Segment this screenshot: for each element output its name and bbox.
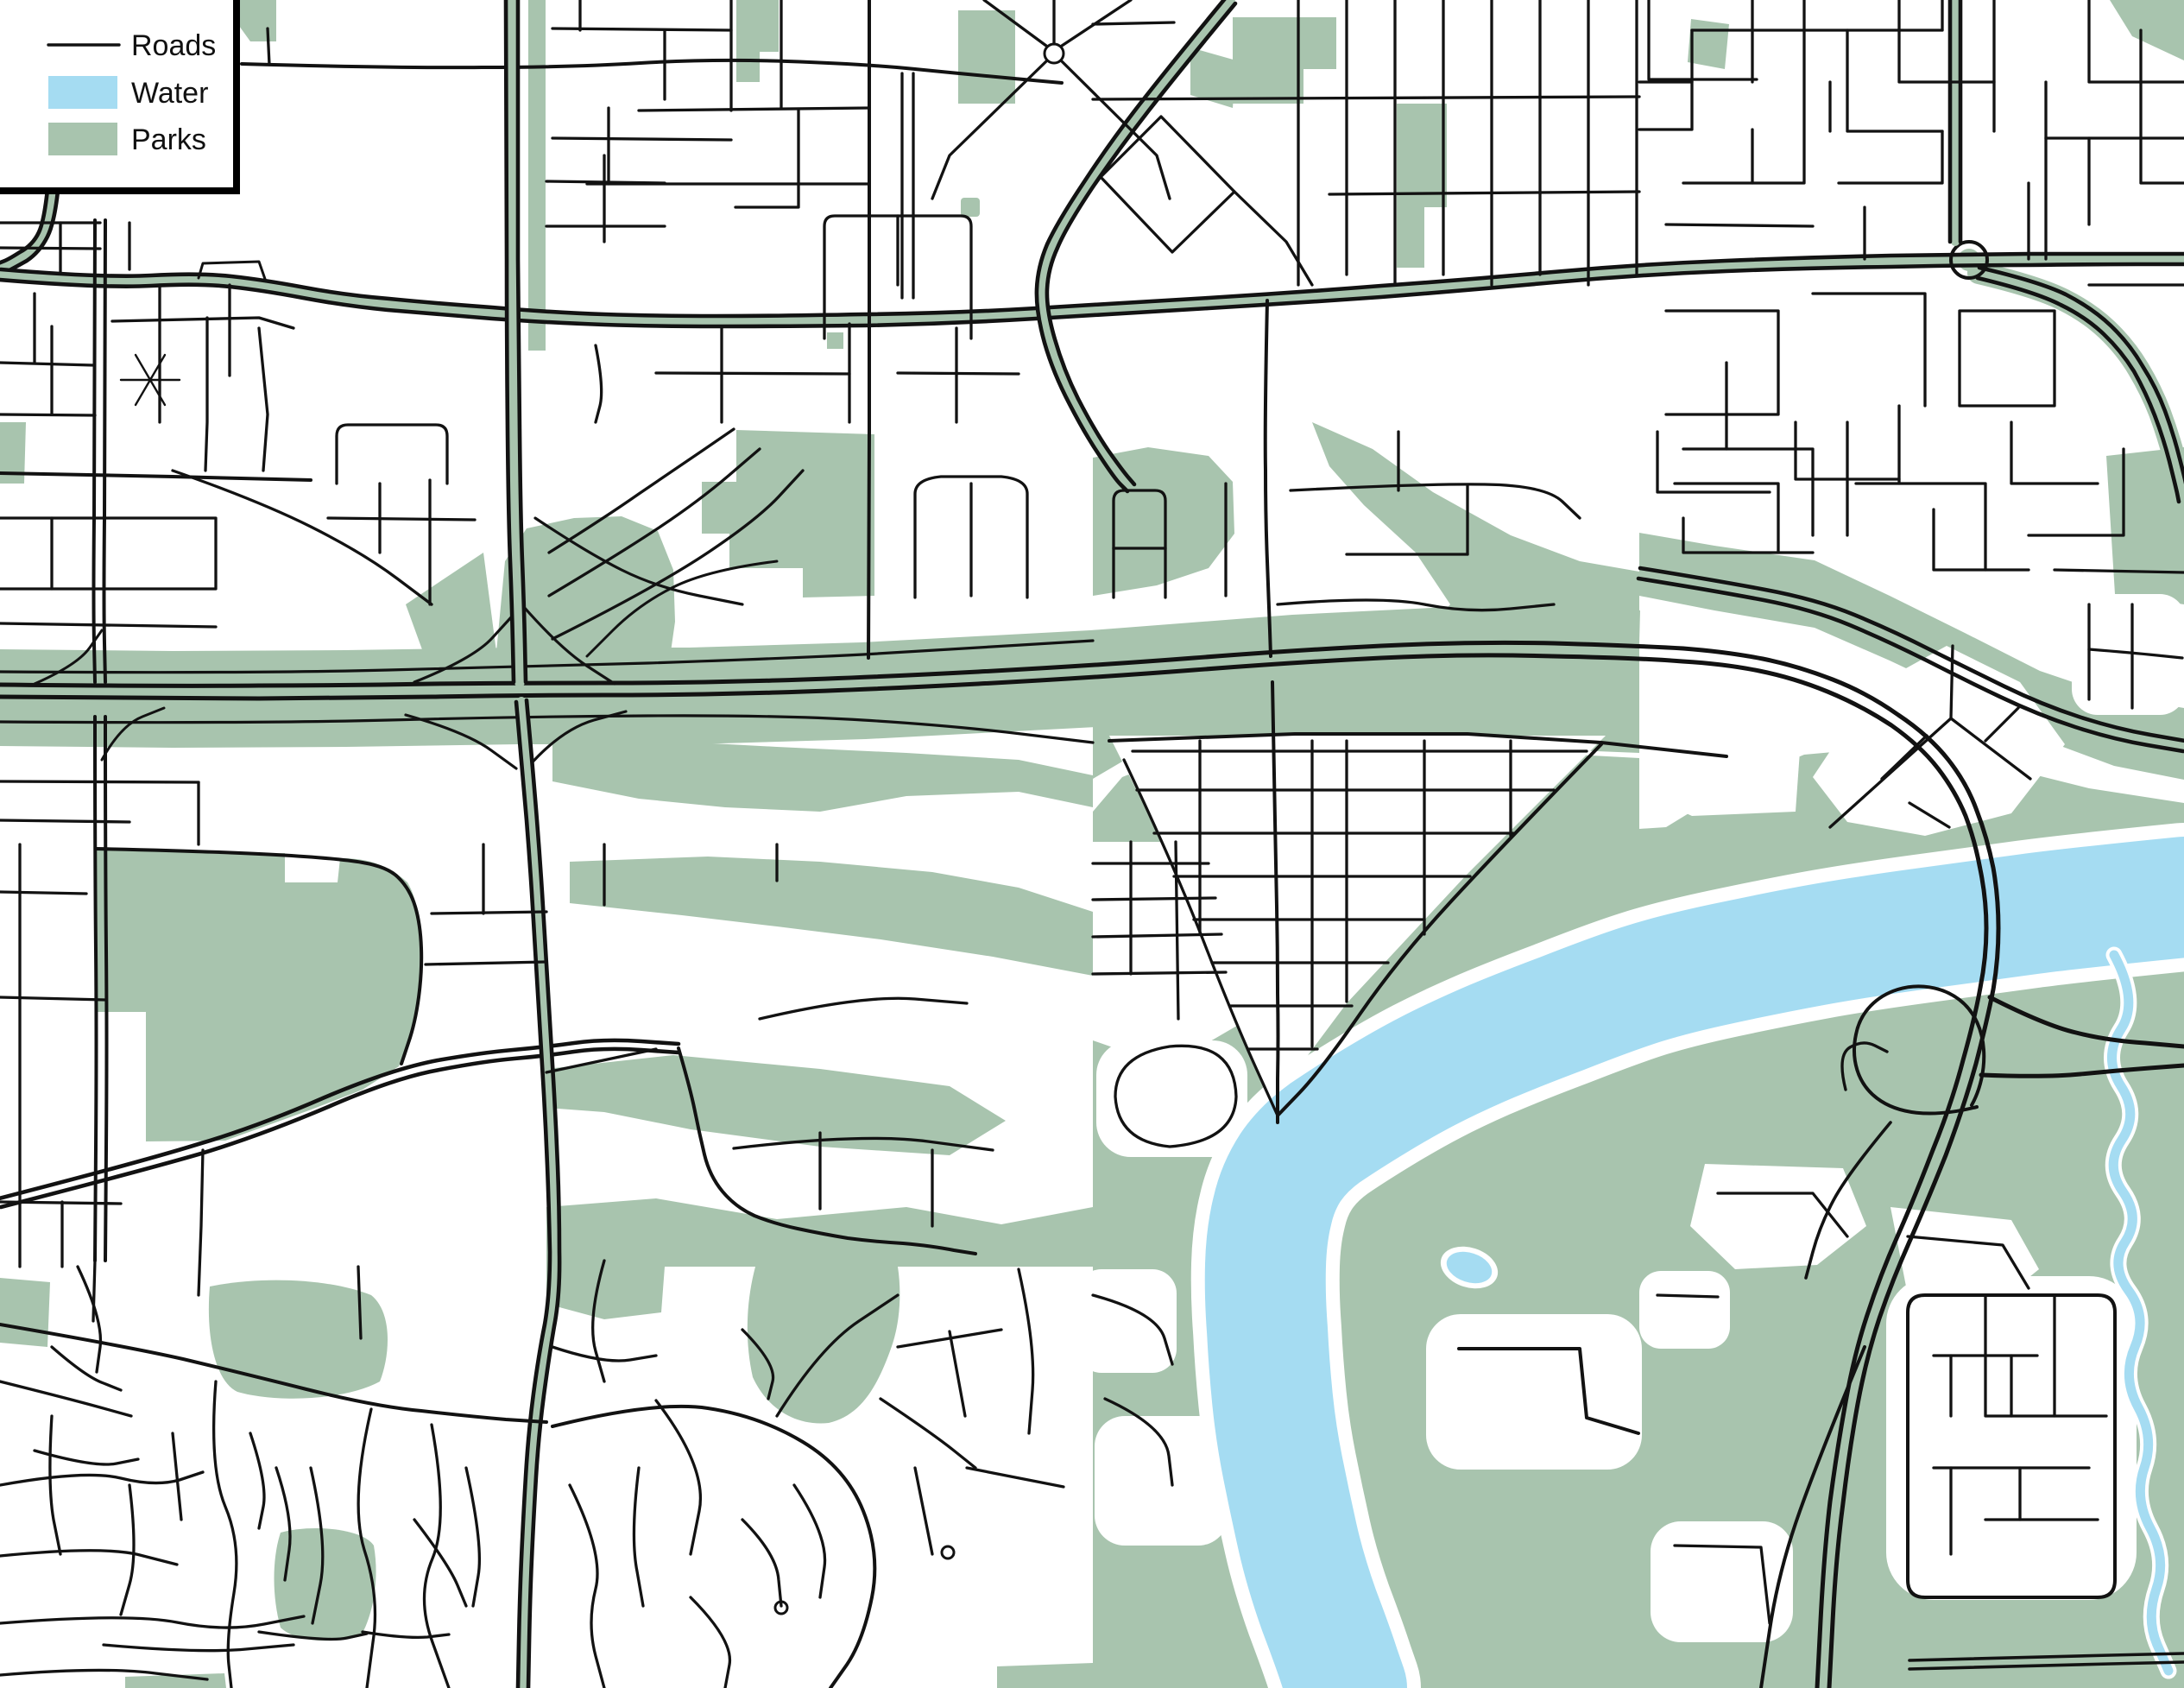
svg-text:Parks: Parks bbox=[131, 123, 206, 156]
svg-text:Water: Water bbox=[131, 77, 208, 110]
svg-text:Roads: Roads bbox=[131, 29, 216, 62]
